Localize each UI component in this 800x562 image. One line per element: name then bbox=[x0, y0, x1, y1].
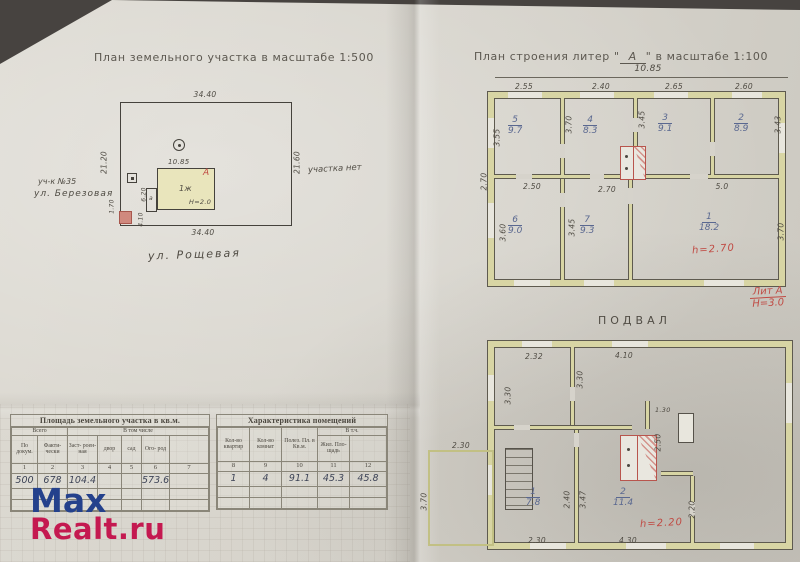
header-cell: По докум. bbox=[12, 435, 38, 463]
header-cell bbox=[170, 435, 209, 463]
bs-dim: 3.30 bbox=[576, 365, 585, 395]
stove-firebox bbox=[621, 436, 638, 480]
door-opening bbox=[690, 174, 708, 179]
f1-dim: 3.70 bbox=[777, 217, 786, 247]
neighbor-street-label: ул. Березовая bbox=[34, 189, 113, 199]
f1-dim: 2.55 bbox=[504, 82, 544, 91]
premises-header-row: Кол-во квартир Кол-во комнат Полез. Пл. … bbox=[218, 428, 387, 436]
bs-dim: 2.30 bbox=[517, 536, 557, 545]
basement-niche bbox=[678, 413, 694, 443]
f1-dim: 3.45 bbox=[638, 105, 647, 135]
building-plan-title-suffix: " в масштабе 1:100 bbox=[646, 50, 768, 63]
number-cell: 12 bbox=[350, 461, 387, 471]
empty-row bbox=[218, 486, 387, 497]
plot-dim-bottom: 34.40 bbox=[183, 228, 223, 237]
basement-height-note: h=2.20 bbox=[640, 517, 684, 530]
door-opening bbox=[574, 433, 579, 447]
utility-symbol-icon bbox=[127, 173, 137, 183]
number-cell: 10 bbox=[282, 461, 318, 471]
bs-dim: 3.70 bbox=[420, 487, 429, 517]
f1-dim: 3.60 bbox=[499, 218, 508, 248]
header-cell: Полез. Пл. в Кв.м. bbox=[282, 428, 318, 462]
plot-house-letter: А bbox=[203, 168, 210, 178]
bs-dim: 3.47 bbox=[579, 485, 588, 515]
bs-dim: 4.30 bbox=[608, 536, 648, 545]
header-cell: сад bbox=[122, 435, 142, 463]
number-cell: 4 bbox=[98, 463, 122, 473]
building-plan-title-prefix: План строения литер " bbox=[474, 50, 620, 63]
interior-wall bbox=[710, 98, 715, 175]
window bbox=[487, 203, 495, 238]
land-number-row: 1 2 3 4 5 6 7 bbox=[12, 463, 209, 473]
plot-annex-dim-b: 4.10 bbox=[138, 205, 145, 235]
room-label: 28.9 bbox=[734, 114, 748, 135]
number-cell: 5 bbox=[122, 463, 142, 473]
liter-note: Лит А Н=3.0 bbox=[749, 285, 786, 310]
plot-annex-letter: а bbox=[149, 195, 153, 202]
f1-dim: 3.45 bbox=[568, 213, 577, 243]
land-plan-title: План земельного участка в масштабе 1:500 bbox=[94, 51, 374, 64]
header-cell: Факти- чески bbox=[38, 435, 68, 463]
room-label: 17.8 bbox=[526, 488, 540, 509]
window bbox=[704, 279, 744, 287]
f1-dim: 5.0 bbox=[702, 182, 742, 191]
header-cell: Кол-во комнат bbox=[250, 428, 282, 462]
stove-firebox bbox=[621, 147, 634, 179]
number-cell: 11 bbox=[318, 461, 350, 471]
f1-dim: 2.65 bbox=[654, 82, 694, 91]
plot-dim-right: 21.60 bbox=[293, 148, 302, 178]
number-cell: 7 bbox=[170, 463, 209, 473]
room-label: 118.2 bbox=[699, 213, 719, 234]
window bbox=[720, 542, 754, 550]
window bbox=[508, 91, 542, 99]
number-cell: 9 bbox=[250, 461, 282, 471]
building-plan-title: План строения литер "А" в масштабе 1:100 bbox=[474, 50, 768, 63]
bs-dim: 2.20 bbox=[688, 495, 697, 525]
f1-dim: 2.70 bbox=[587, 185, 627, 194]
group-cell: В том числе bbox=[68, 428, 209, 436]
number-cell: 6 bbox=[142, 463, 170, 473]
group-cell: Всего bbox=[12, 428, 68, 436]
number-cell: 3 bbox=[68, 463, 98, 473]
window bbox=[487, 375, 495, 401]
door-opening bbox=[514, 425, 530, 430]
plot-house-height-label: Н=2.0 bbox=[189, 198, 211, 206]
f1-dim: 3.55 bbox=[493, 123, 502, 153]
f1-dim: 2.50 bbox=[512, 182, 552, 191]
bs-dim: 1.30 bbox=[655, 406, 671, 414]
value-cell bbox=[170, 473, 209, 488]
room-label: 211.4 bbox=[613, 488, 633, 509]
value-cell: 4 bbox=[250, 471, 282, 486]
room-label: 48.3 bbox=[583, 116, 597, 137]
door-opening bbox=[628, 188, 633, 204]
f1-dim: 3.43 bbox=[774, 110, 783, 140]
well-symbol-icon bbox=[173, 139, 185, 151]
header-cell: двор bbox=[98, 435, 122, 463]
f1-dim: 2.40 bbox=[581, 82, 621, 91]
land-table-title: Площадь земельного участка в кв.м. bbox=[11, 415, 209, 427]
number-cell: 2 bbox=[38, 463, 68, 473]
value-cell: 1 bbox=[218, 471, 250, 486]
window bbox=[522, 340, 552, 348]
window bbox=[654, 91, 688, 99]
window bbox=[584, 279, 614, 287]
basement-annex-outline bbox=[428, 450, 494, 546]
watermark-line2: Realt.ru bbox=[30, 516, 165, 543]
bs-dim: 3.30 bbox=[504, 381, 513, 411]
stove-icon bbox=[620, 146, 646, 180]
header-cell: Кол-во квартир bbox=[218, 428, 250, 462]
overall-dim-line bbox=[495, 77, 788, 78]
premises-number-row: 8 9 10 11 12 bbox=[218, 461, 387, 471]
interior-wall bbox=[645, 401, 650, 429]
window bbox=[612, 340, 648, 348]
premises-table: Характеристика помещений Кол-во квартир … bbox=[216, 414, 388, 510]
bs-dim: 2.32 bbox=[514, 352, 554, 361]
photo-background: План земельного участка в масштабе 1:500… bbox=[0, 0, 800, 562]
f1-dim: 2.70 bbox=[480, 167, 489, 197]
door-opening bbox=[560, 144, 565, 158]
neighbor-plot-label: уч-к №35 bbox=[38, 177, 76, 186]
bs-dim: 2.50 bbox=[654, 428, 663, 458]
stove-icon bbox=[620, 435, 657, 481]
door-opening bbox=[570, 387, 575, 401]
header-cell: Ого- род bbox=[142, 435, 170, 463]
window bbox=[514, 279, 550, 287]
door-opening bbox=[516, 174, 532, 179]
watermark: Max Realt.ru bbox=[30, 486, 165, 543]
room-label: 39.1 bbox=[658, 114, 672, 135]
door-opening bbox=[560, 193, 565, 207]
floor1-overall-width: 10.85 bbox=[628, 64, 668, 74]
plot-dim-left: 21.20 bbox=[100, 148, 109, 178]
plot-house-dim-top: 10.85 bbox=[168, 158, 190, 166]
plot-corner-structure bbox=[119, 211, 132, 224]
header-cell bbox=[350, 435, 387, 461]
door-opening bbox=[710, 142, 715, 156]
land-header-row: По докум. Факти- чески Заст- роен- ная д… bbox=[12, 435, 209, 463]
land-group-row: Всего В том числе bbox=[12, 428, 209, 436]
stove-hatch bbox=[634, 147, 645, 179]
value-cell: 91.1 bbox=[282, 471, 318, 486]
interior-wall bbox=[661, 471, 693, 476]
building-liter-letter: А bbox=[620, 50, 646, 64]
window bbox=[732, 91, 762, 99]
door-opening bbox=[590, 174, 604, 179]
basement-exterior-walls bbox=[488, 341, 792, 549]
room-label: 79.3 bbox=[580, 216, 594, 237]
plot-house-storey-label: 1ж bbox=[179, 184, 192, 193]
bs-dim: 2.30 bbox=[441, 441, 481, 450]
value-cell: 45.3 bbox=[318, 471, 350, 486]
window bbox=[785, 383, 793, 423]
header-cell: Заст- роен- ная bbox=[68, 435, 98, 463]
f1-dim: 3.70 bbox=[565, 110, 574, 140]
premises-value-row: 1 4 91.1 45.3 45.8 bbox=[218, 471, 387, 486]
plot-dim-top: 34.40 bbox=[185, 90, 225, 99]
number-cell: 8 bbox=[218, 461, 250, 471]
room-label: 59.7 bbox=[508, 116, 522, 137]
empty-row bbox=[218, 497, 387, 508]
number-cell: 1 bbox=[12, 463, 38, 473]
bs-dim: 4.10 bbox=[604, 351, 644, 360]
window bbox=[580, 91, 614, 99]
header-cell: Жил. Пло- щадь bbox=[318, 435, 350, 461]
group-cell: В т.ч. bbox=[318, 428, 387, 436]
value-cell: 45.8 bbox=[350, 471, 387, 486]
room-label: 69.0 bbox=[508, 216, 522, 237]
premises-table-title: Характеристика помещений bbox=[217, 415, 387, 427]
f1-dim: 2.60 bbox=[724, 82, 764, 91]
basement-label: ПОДВАЛ bbox=[598, 314, 671, 327]
bs-dim: 2.40 bbox=[563, 485, 572, 515]
